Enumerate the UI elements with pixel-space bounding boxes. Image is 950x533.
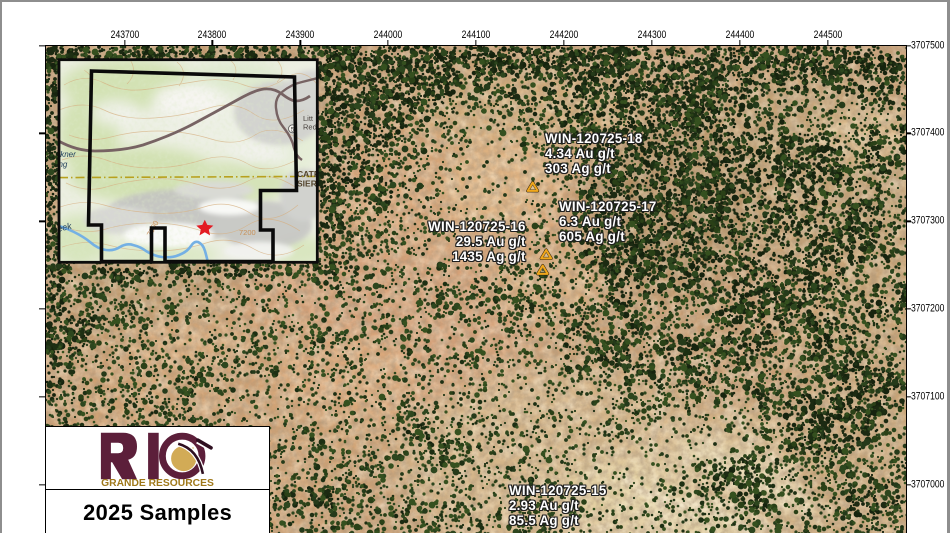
svg-text:Red: Red xyxy=(303,123,317,132)
svg-text:SIER: SIER xyxy=(297,179,317,189)
svg-text:ring: ring xyxy=(54,160,68,169)
svg-text:7200: 7200 xyxy=(239,228,256,237)
svg-text:GRANDE RESOURCES: GRANDE RESOURCES xyxy=(101,478,214,489)
svg-text:ulkner: ulkner xyxy=(54,150,76,159)
